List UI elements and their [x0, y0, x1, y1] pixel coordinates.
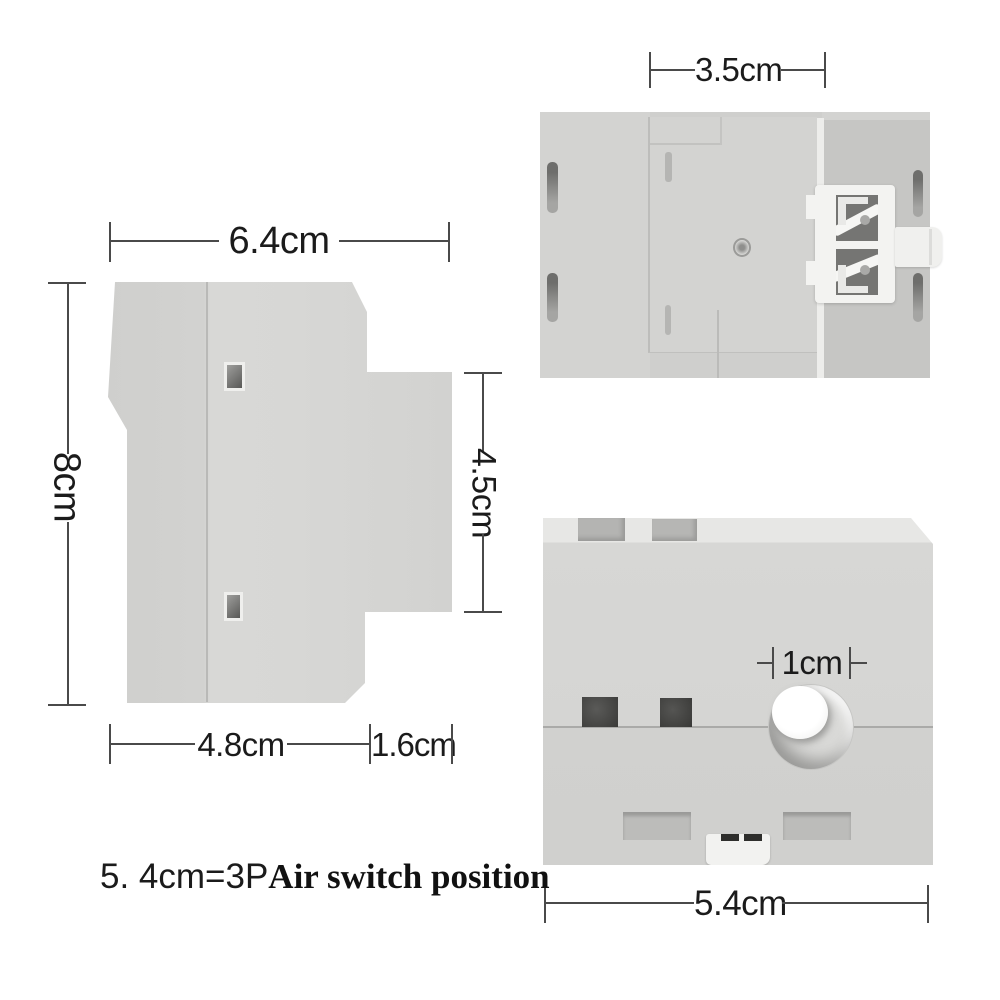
din-clip-window-bottom	[836, 249, 878, 295]
dim-1-label: 1cm	[774, 645, 850, 681]
dim-35-tick-right	[824, 52, 826, 88]
back-left-section	[540, 112, 650, 378]
panel-slot-mark-top	[665, 152, 672, 182]
front-dark-hole-left	[582, 697, 618, 727]
dim-54-tick-right	[927, 885, 929, 923]
front-top-tab-left	[578, 518, 625, 541]
side-seam-line	[206, 282, 208, 702]
dim-64-tick-right	[448, 222, 450, 262]
front-bottom-clip-tab	[706, 834, 770, 865]
front-view-body	[543, 518, 933, 865]
panel-notch-h	[650, 143, 720, 145]
dim-8-tick-bottom	[48, 704, 86, 706]
din-clip-left-tab-bottom	[806, 261, 816, 285]
product-dimension-diagram: 6.4cm 8cm 4.5cm 4.8cm 1.6cm	[0, 0, 1000, 1000]
back-center-panel	[648, 117, 817, 353]
dim-54-label: 5.4cm	[694, 884, 782, 924]
dim-64-line-right	[339, 240, 448, 242]
front-round-hole	[769, 685, 853, 769]
dim-64-line-left	[111, 240, 219, 242]
back-view-body	[540, 112, 930, 378]
dim-64-label: 6.4cm	[219, 221, 339, 261]
din-clip-tab-line	[929, 229, 932, 265]
dim-8-line-bottom	[67, 522, 69, 705]
panel-center-hole	[733, 238, 751, 257]
panel-notch-v	[720, 117, 722, 145]
front-hole-plug	[772, 686, 828, 739]
dim-35-line-right	[781, 69, 824, 71]
front-bottom-slot-left	[623, 812, 691, 840]
dim-64-tick-left	[109, 222, 111, 262]
dim-35-label: 3.5cm	[695, 51, 781, 89]
side-square-hole-top	[224, 362, 245, 391]
clip-pivot-top	[860, 215, 870, 225]
dim-35-line-left	[651, 69, 695, 71]
back-left-slot-top	[547, 162, 558, 213]
din-rail-clip	[806, 183, 946, 315]
din-clip-right-tab	[895, 227, 942, 267]
din-clip-window-top	[836, 195, 878, 241]
dim-54-line-right	[782, 902, 927, 904]
dim-45-line-top	[482, 374, 484, 452]
dim-45-label: 4.5cm	[464, 448, 503, 538]
panel-slot-mark-bottom	[665, 305, 671, 335]
dim-1-stub-right	[851, 662, 867, 664]
dim-16-label: 1.6cm	[371, 725, 451, 765]
dim-1-stub-left	[757, 662, 773, 664]
front-top-tab-right	[652, 519, 697, 541]
clip-pivot-bottom	[860, 265, 870, 275]
dim-45-tick-bottom	[464, 611, 502, 613]
dim-8-label: 8cm	[45, 452, 88, 522]
dim-8-line-top	[67, 284, 69, 454]
side-square-hole-bottom	[224, 592, 243, 621]
front-dark-hole-right	[660, 698, 692, 727]
dim-48-label: 4.8cm	[195, 725, 287, 765]
back-left-slot-bottom	[547, 273, 558, 322]
front-bottom-slot-right	[783, 812, 851, 840]
caption-emphasis: Air switch position	[268, 857, 549, 896]
dim-48-line-right	[287, 743, 369, 745]
front-view-top-cap	[553, 417, 917, 515]
dim-16-tick-right	[451, 724, 453, 764]
din-clip-left-tab-top	[806, 195, 816, 219]
dim-48-line-left	[111, 743, 195, 745]
clip-bracket-top-h	[838, 197, 868, 204]
side-view-body	[107, 280, 452, 704]
back-bottom-seam	[717, 310, 719, 378]
caption-prefix: 5. 4cm=3P	[100, 857, 268, 896]
caption: 5. 4cm=3PAir switch position	[100, 856, 550, 898]
clip-tab-dash-left	[721, 834, 739, 841]
clip-tab-dash-right	[744, 834, 762, 841]
dim-54-line-left	[546, 902, 694, 904]
clip-bracket-bottom-h	[838, 286, 868, 293]
dim-45-line-bottom	[482, 534, 484, 612]
